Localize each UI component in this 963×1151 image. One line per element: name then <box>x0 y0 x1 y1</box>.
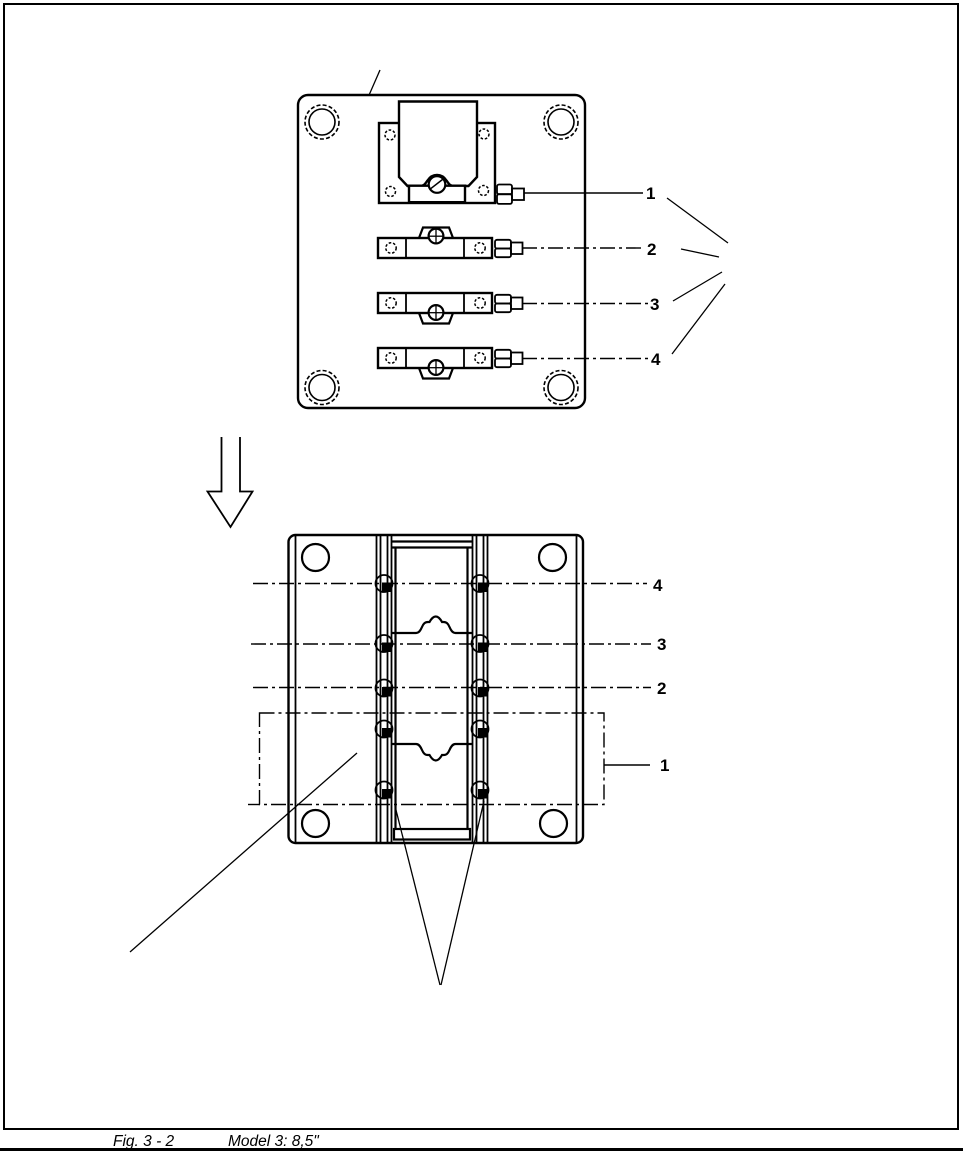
top-callout-2: 2 <box>647 240 656 259</box>
bottom-callout-4: 4 <box>653 576 663 595</box>
figure-label: Fig. 3 - 2 <box>113 1133 175 1150</box>
bottom-callout-1: 1 <box>660 756 669 775</box>
bottom-plate <box>289 535 584 843</box>
channel-bottom-cap <box>394 829 470 840</box>
top-callout-4: 4 <box>651 350 661 369</box>
top-callout-1: 1 <box>646 184 655 203</box>
figure-drawing: 1 2 3 4 <box>0 0 963 1151</box>
model-label: Model 3: 8,5" <box>228 1133 320 1150</box>
top-callout-3: 3 <box>650 295 659 314</box>
bottom-callout-3: 3 <box>657 635 666 654</box>
bracket-head <box>399 102 477 187</box>
bottom-callout-2: 2 <box>657 679 666 698</box>
